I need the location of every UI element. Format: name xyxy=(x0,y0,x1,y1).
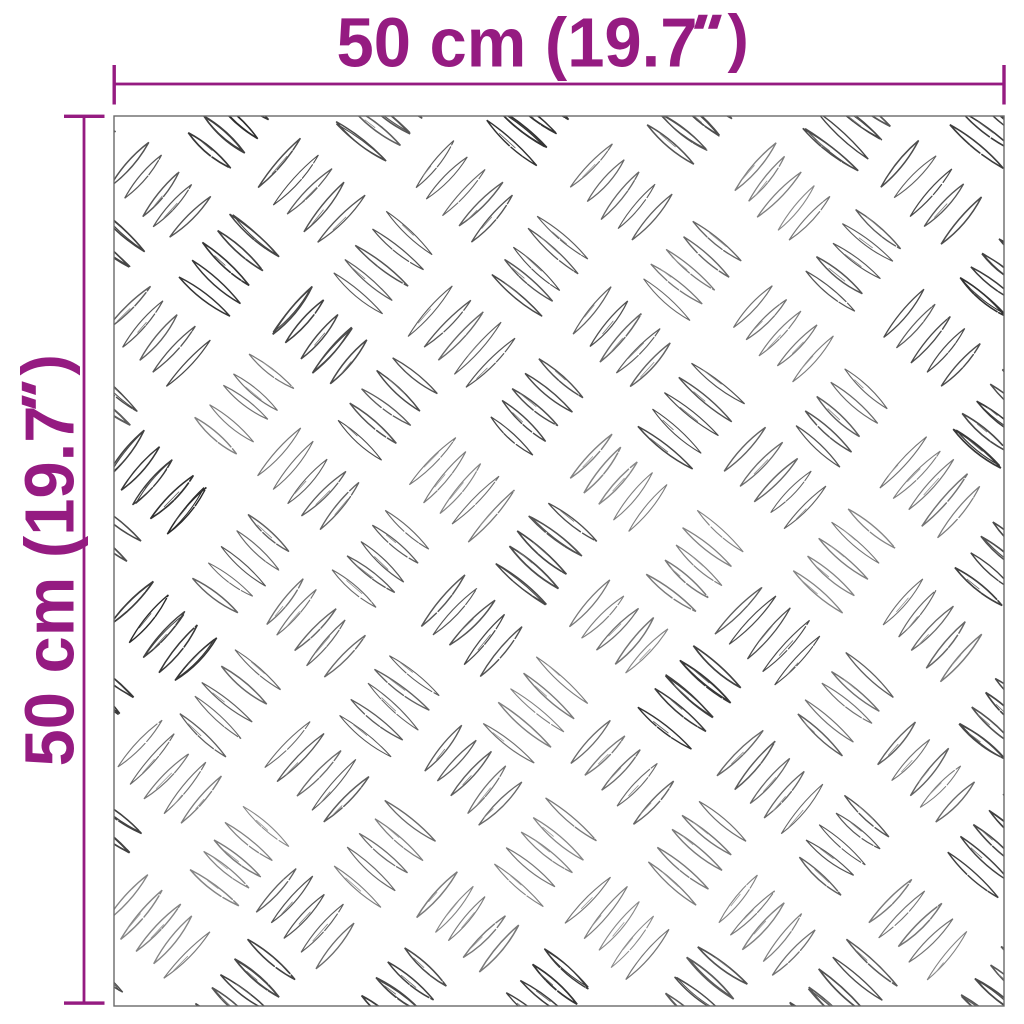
svg-text:50 cm (19.7: 50 cm (19.7 xyxy=(11,406,89,767)
svg-text:50 cm (19.7: 50 cm (19.7 xyxy=(337,4,698,82)
svg-text:): ) xyxy=(9,354,81,375)
svg-text:): ) xyxy=(728,2,749,74)
